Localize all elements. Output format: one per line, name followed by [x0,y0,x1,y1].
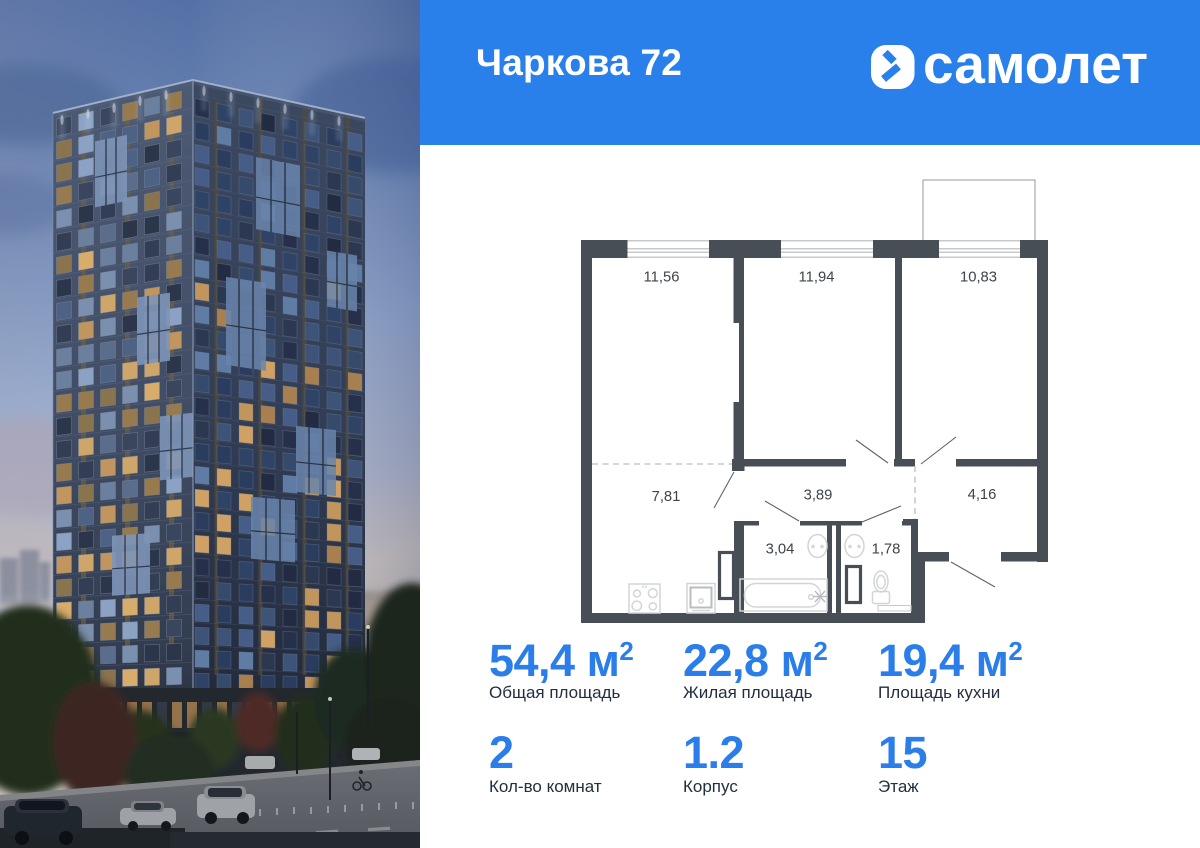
svg-text:1,78: 1,78 [872,542,901,558]
svg-text:11,56: 11,56 [644,270,680,286]
svg-text:3,89: 3,89 [804,488,833,504]
svg-text:7,81: 7,81 [652,489,681,505]
svg-text:3,04: 3,04 [766,542,795,558]
svg-text:10,83: 10,83 [960,270,997,286]
svg-text:4,16: 4,16 [968,487,997,503]
svg-text:11,94: 11,94 [799,270,835,286]
svg-text:самолет: самолет [923,33,1148,95]
